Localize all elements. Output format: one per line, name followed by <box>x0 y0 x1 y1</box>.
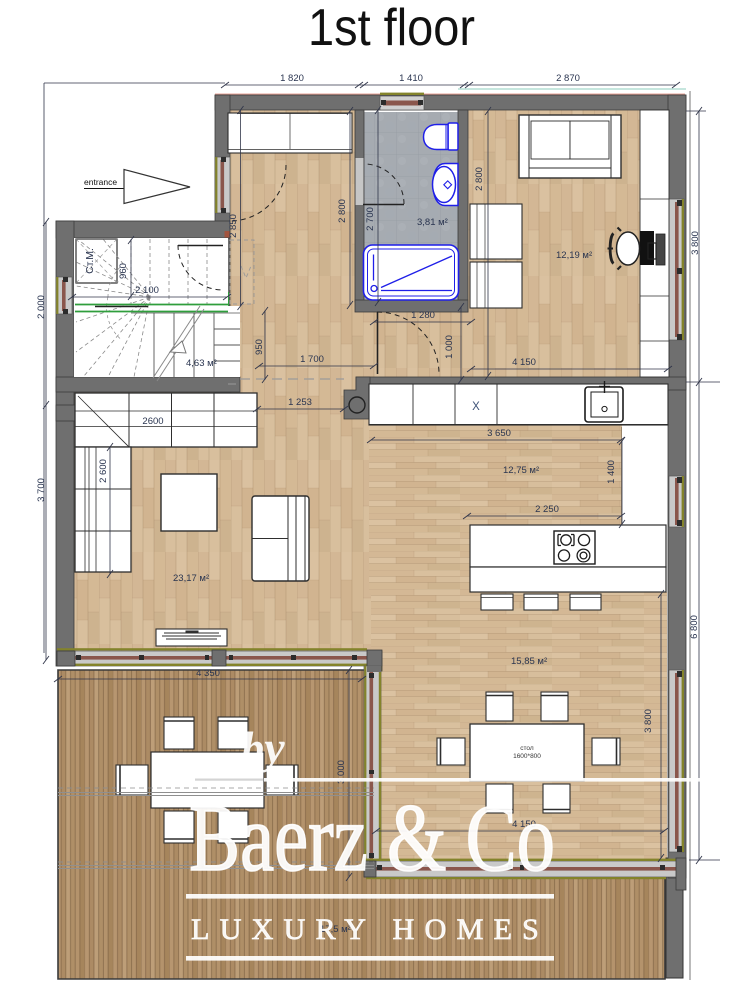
svg-text:2 870: 2 870 <box>556 73 580 84</box>
svg-text:4 350: 4 350 <box>196 668 220 679</box>
svg-text:3 700: 3 700 <box>36 478 47 502</box>
svg-text:2 600: 2 600 <box>98 459 109 483</box>
svg-text:стол: стол <box>520 745 534 752</box>
svg-text:3,81 м²: 3,81 м² <box>417 217 448 228</box>
svg-text:6 800: 6 800 <box>689 615 700 639</box>
svg-text:2 850: 2 850 <box>228 214 239 238</box>
svg-text:3 800: 3 800 <box>643 709 654 733</box>
svg-text:2 000: 2 000 <box>36 295 47 319</box>
svg-text:1 410: 1 410 <box>399 73 423 84</box>
svg-text:2600: 2600 <box>142 416 163 427</box>
svg-text:1 280: 1 280 <box>411 310 435 321</box>
svg-text:1 820: 1 820 <box>280 73 304 84</box>
svg-text:1 700: 1 700 <box>300 354 324 365</box>
svg-text:15,85 м²: 15,85 м² <box>511 656 547 667</box>
svg-text:LUXURY HOMES: LUXURY HOMES <box>191 913 549 946</box>
svg-text:1 400: 1 400 <box>606 460 617 484</box>
svg-text:entrance: entrance <box>84 177 117 187</box>
svg-text:Baerz & Co: Baerz & Co <box>189 784 555 891</box>
svg-text:1 253: 1 253 <box>288 397 312 408</box>
svg-text:2 250: 2 250 <box>535 504 559 515</box>
svg-text:2 100: 2 100 <box>135 285 159 296</box>
svg-text:960: 960 <box>118 263 129 279</box>
svg-text:by: by <box>241 722 285 773</box>
svg-text:1600*800: 1600*800 <box>513 753 541 760</box>
svg-text:X: X <box>472 401 480 413</box>
svg-text:12,19 м²: 12,19 м² <box>556 250 592 261</box>
svg-text:4 150: 4 150 <box>512 357 536 368</box>
svg-text:3 800: 3 800 <box>690 231 701 255</box>
svg-text:12,75 м²: 12,75 м² <box>503 465 539 476</box>
svg-text:2 800: 2 800 <box>474 167 485 191</box>
svg-text:23,17 м²: 23,17 м² <box>173 573 209 584</box>
svg-text:950: 950 <box>254 339 265 355</box>
svg-text:4,63 м²: 4,63 м² <box>186 358 217 369</box>
svg-text:3 650: 3 650 <box>487 428 511 439</box>
svg-text:1 000: 1 000 <box>444 335 455 359</box>
svg-text:2 700: 2 700 <box>365 207 376 231</box>
svg-text:1st floor: 1st floor <box>308 0 475 57</box>
svg-text:2 800: 2 800 <box>337 199 348 223</box>
